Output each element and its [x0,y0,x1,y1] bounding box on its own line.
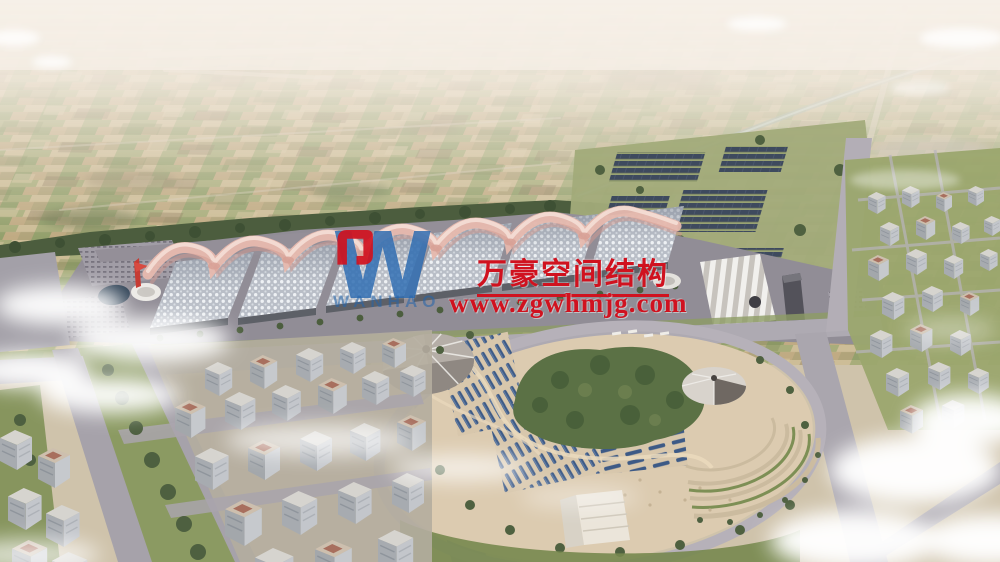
forest-mound [513,347,704,449]
rendered-scene [0,0,1000,562]
entry-pavilion-east [653,273,681,289]
tent-canopy-east [682,367,746,405]
sky [0,0,1000,70]
aerial-rendering-image: W WANHAO 万豪空间结构 www.zgwhmjg.com [0,0,1000,562]
entry-pavilion-west [131,283,161,301]
